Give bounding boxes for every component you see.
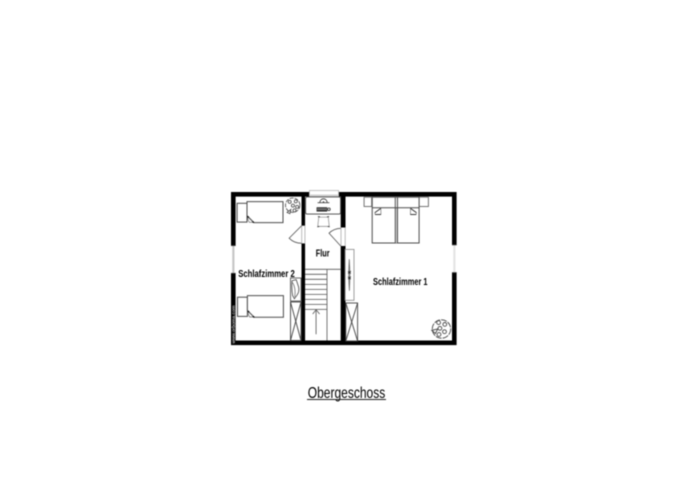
svg-text:Flur: Flur [316,249,330,260]
svg-text:www.orboma.com: www.orboma.com [231,305,237,343]
svg-text:Schlafzimmer 1: Schlafzimmer 1 [373,277,428,288]
svg-text:Schlafzimmer 2: Schlafzimmer 2 [238,269,295,280]
